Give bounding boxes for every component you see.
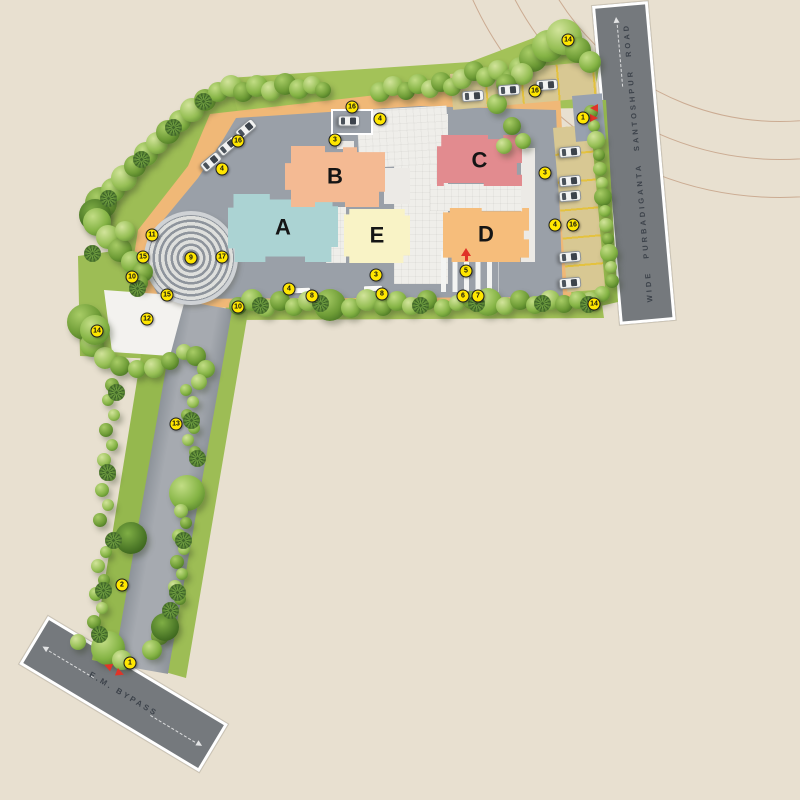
plan-marker-14: 14 — [588, 298, 601, 311]
plan-marker-8: 8 — [306, 290, 319, 303]
car-windshield — [571, 279, 578, 286]
palm-shrub — [105, 532, 122, 549]
tree — [515, 133, 531, 149]
palm-shrub — [162, 602, 179, 619]
tree — [599, 205, 611, 217]
entry-in-arrow — [590, 104, 598, 112]
palm-shrub — [100, 190, 117, 207]
plan-marker-3: 3 — [539, 167, 552, 180]
tree — [605, 261, 617, 273]
car-windshield — [571, 192, 578, 199]
palm-shrub — [95, 582, 112, 599]
tree — [180, 517, 192, 529]
building-a: A — [228, 194, 338, 262]
palm-shrub — [91, 626, 108, 643]
building-a-label: A — [275, 214, 291, 240]
tree — [593, 162, 607, 176]
tree — [191, 374, 207, 390]
tree — [106, 439, 118, 451]
plan-marker-8: 8 — [376, 288, 389, 301]
tree — [605, 274, 619, 288]
plan-marker-16: 16 — [346, 101, 359, 114]
car-rear-window — [501, 87, 505, 94]
tree — [115, 221, 135, 241]
paved-plaza — [430, 184, 530, 211]
plan-marker-7: 7 — [472, 290, 485, 303]
tree — [91, 559, 105, 573]
plan-marker-16: 16 — [232, 135, 245, 148]
tree — [593, 149, 605, 161]
building-b-label: B — [327, 163, 343, 189]
car-rear-window — [562, 178, 567, 185]
car-rear-window — [562, 280, 567, 287]
building-c-label: C — [472, 147, 488, 173]
palm-shrub — [534, 295, 551, 312]
plan-marker-4: 4 — [549, 219, 562, 232]
parked-car — [338, 116, 360, 127]
road-direction-arrow — [613, 17, 620, 24]
tree — [99, 423, 113, 437]
tree — [182, 434, 194, 446]
palm-shrub — [169, 584, 186, 601]
plan-marker-1: 1 — [124, 657, 137, 670]
plan-marker-9: 9 — [185, 252, 198, 265]
tree — [600, 244, 618, 262]
plan-marker-4: 4 — [374, 113, 387, 126]
plan-marker-13: 13 — [170, 418, 183, 431]
car-windshield — [510, 86, 516, 93]
plan-marker-15: 15 — [161, 289, 174, 302]
tree — [174, 504, 188, 518]
entry-in-arrow — [103, 661, 113, 671]
palm-shrub — [183, 412, 200, 429]
tree — [187, 396, 199, 408]
site-plan: WIDE PURBADIGANTA SANTOSHPUR ROAD E.M. B… — [0, 0, 800, 800]
entry-out-arrow — [590, 114, 598, 122]
palm-shrub — [133, 151, 150, 168]
parked-car — [559, 251, 582, 264]
palm-shrub — [99, 464, 116, 481]
car-windshield — [548, 81, 554, 88]
plan-marker-14: 14 — [562, 34, 575, 47]
plan-marker-3: 3 — [329, 134, 342, 147]
tree — [70, 634, 86, 650]
car-rear-window — [562, 149, 567, 156]
building-d: D — [443, 208, 529, 262]
car-rear-window — [562, 254, 567, 261]
tree — [110, 356, 130, 376]
plan-marker-6: 6 — [457, 290, 470, 303]
tree — [503, 117, 521, 135]
palm-shrub — [252, 297, 269, 314]
santoshpur-road-name: WIDE PURBADIGANTA SANTOSHPUR ROAD — [621, 23, 654, 303]
parked-car — [462, 90, 485, 103]
tree — [496, 138, 512, 154]
palm-shrub — [195, 93, 212, 110]
tree — [176, 568, 188, 580]
tree — [487, 94, 507, 114]
plan-marker-10: 10 — [126, 271, 139, 284]
tree — [594, 188, 612, 206]
crossing-arrow-stem — [465, 256, 468, 261]
plan-marker-2: 2 — [116, 579, 129, 592]
car-windshield — [474, 92, 480, 99]
tree — [142, 640, 162, 660]
tree — [93, 513, 107, 527]
car-windshield — [245, 122, 254, 131]
palm-shrub — [108, 384, 125, 401]
tree — [96, 602, 108, 614]
road-centerline — [150, 715, 195, 743]
tree — [579, 51, 601, 73]
parked-car — [559, 190, 582, 203]
tree — [315, 82, 331, 98]
entry-steps — [384, 168, 410, 204]
palm-shrub — [165, 119, 182, 136]
tree — [587, 131, 605, 149]
plan-marker-16: 16 — [529, 85, 542, 98]
building-b: B — [285, 146, 385, 207]
road-direction-arrow — [195, 740, 203, 748]
plan-marker-10: 10 — [232, 301, 245, 314]
palm-shrub — [189, 450, 206, 467]
tree — [95, 483, 109, 497]
plan-marker-1: 1 — [577, 112, 590, 125]
plan-marker-17: 17 — [216, 251, 229, 264]
palm-shrub — [84, 245, 101, 262]
palm-shrub — [175, 532, 192, 549]
crossing-arrow — [461, 248, 471, 256]
car-rear-window — [465, 93, 469, 100]
palm-shrub — [412, 297, 429, 314]
tree — [599, 218, 613, 232]
parked-car — [559, 175, 582, 188]
building-d-label: D — [478, 221, 494, 247]
car-rear-window — [203, 162, 211, 170]
car-windshield — [571, 148, 578, 155]
plan-marker-14: 14 — [91, 325, 104, 338]
tree — [169, 475, 205, 511]
parked-car — [498, 84, 521, 97]
plan-marker-3: 3 — [370, 269, 383, 282]
plan-marker-4: 4 — [216, 163, 229, 176]
entry-out-arrow — [115, 668, 125, 678]
tree — [180, 384, 192, 396]
car-windshield — [350, 118, 356, 125]
tree — [108, 409, 120, 421]
plan-marker-12: 12 — [141, 313, 154, 326]
parked-car — [559, 146, 582, 159]
plan-marker-15: 15 — [137, 251, 150, 264]
car-windshield — [210, 155, 219, 164]
car-rear-window — [562, 193, 567, 200]
road-centerline — [49, 651, 94, 679]
parked-car — [559, 277, 582, 290]
car-rear-window — [341, 118, 345, 125]
tree — [170, 555, 184, 569]
plan-marker-16: 16 — [567, 219, 580, 232]
plan-marker-11: 11 — [146, 229, 159, 242]
plan-marker-4: 4 — [283, 283, 296, 296]
building-e-label: E — [370, 222, 385, 248]
car-windshield — [571, 253, 578, 260]
plan-marker-5: 5 — [460, 265, 473, 278]
car-windshield — [571, 177, 578, 184]
building-e: E — [344, 209, 410, 263]
tree — [102, 499, 114, 511]
car-rear-window — [220, 146, 228, 154]
